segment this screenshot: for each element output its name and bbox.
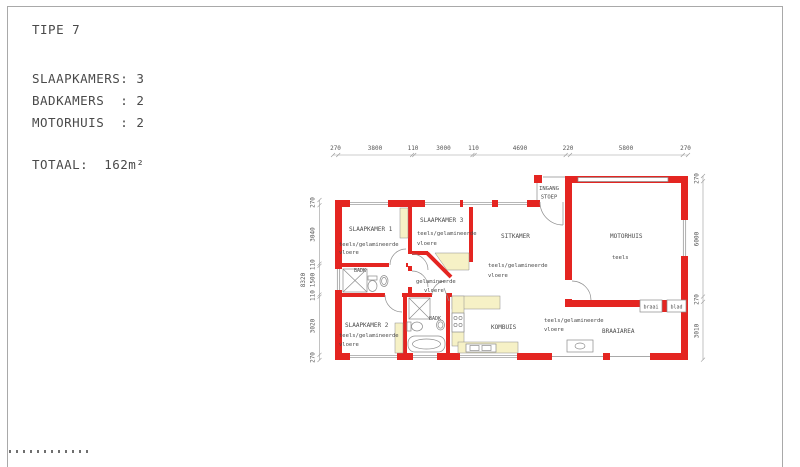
window-bath1 — [335, 269, 342, 290]
dim-left-6: 270 — [310, 352, 317, 363]
toilet-1 — [368, 281, 377, 292]
window-kombuis — [460, 353, 517, 360]
doorway-garage — [565, 280, 572, 299]
window-bath2 — [413, 353, 437, 360]
window-sitkamer-b — [498, 200, 527, 207]
garage-door-opening — [578, 178, 668, 182]
label-slaapkamer1-floor1: teels/gelamineerde — [339, 242, 399, 248]
dim-right-3: 3010 — [694, 323, 701, 338]
wall-pier-braai — [662, 300, 667, 312]
doorway-sk3 — [408, 254, 412, 266]
floor-plan-drawing: 270 3800 110 3000 110 4690 220 5800 270 … — [0, 0, 800, 454]
label-slaapkamer2-floor2: vloere — [339, 342, 359, 348]
label-sitkamer-floor1: teels/gelamineerde — [488, 263, 548, 269]
dim-right-2: 270 — [694, 294, 701, 305]
dim-top-8: 270 — [680, 145, 691, 152]
sk3-door-arc — [412, 254, 428, 270]
dimension-right: 270 6000 270 3010 — [694, 173, 706, 362]
label-slaapkamer1: SLAAPKAMER 1 — [349, 226, 393, 233]
label-motorhuis: MOTORHUIS — [610, 233, 643, 240]
label-badkamer1: BADK — [354, 268, 366, 274]
braai-sink-box — [567, 340, 593, 352]
label-gang-floor1: gelamineerde — [416, 279, 456, 285]
dim-left-5: 3020 — [310, 318, 317, 333]
label-motorhuis-floor: teels — [612, 255, 629, 261]
label-slaapkamer3: SLAAPKAMER 3 — [420, 217, 464, 224]
dim-top-5: 4690 — [513, 145, 528, 152]
doorway-sk1 — [389, 263, 406, 267]
label-slaapkamer2: SLAAPKAMER 2 — [345, 322, 389, 329]
doorway-sk2 — [385, 293, 402, 297]
wall-bath2-left — [403, 297, 407, 353]
wall-bath2-right — [446, 297, 450, 353]
toilet-2 — [412, 322, 423, 331]
label-slaapkamer3-floor2: vloere — [417, 241, 437, 247]
dim-right-1: 6000 — [694, 231, 701, 246]
entrance-porch — [537, 177, 565, 225]
stove — [452, 313, 464, 332]
label-badkamer2: BADK — [429, 316, 441, 322]
label-braaiarea-floor2: vloere — [544, 327, 564, 333]
sk1-door-arc — [390, 249, 406, 265]
dim-top-2: 110 — [408, 145, 419, 152]
label-ingang: INGANG — [539, 186, 559, 192]
porch-pillar — [534, 175, 542, 183]
window-sk1 — [350, 200, 388, 207]
dim-left-4: 110 — [310, 290, 317, 301]
garage-door-arc — [572, 281, 591, 300]
wall-exterior-right — [681, 176, 688, 360]
toilet-2-tank — [407, 322, 411, 331]
label-slaapkamer2-floor1: teels/gelamineerde — [339, 333, 399, 339]
dim-top-7: 5800 — [619, 145, 634, 152]
window-sk2 — [350, 353, 397, 360]
doorway-bath1 — [408, 271, 412, 287]
bathroom2-fixtures — [407, 298, 445, 352]
dim-right-0: 270 — [694, 173, 701, 184]
dim-top-0: 270 — [330, 145, 341, 152]
dimension-top: 270 3800 110 3000 110 4690 220 5800 270 — [330, 145, 691, 157]
dim-top-1: 3800 — [368, 145, 383, 152]
dim-left-1: 3040 — [310, 227, 317, 242]
dim-top-3: 3000 — [436, 145, 451, 152]
label-braaiarea-floor1: teels/gelamineerde — [544, 318, 604, 324]
window-sk3-a — [425, 200, 460, 207]
braai-label: braai — [643, 305, 658, 311]
label-stoep: STOEP — [541, 195, 558, 201]
front-door-arc — [540, 202, 563, 225]
page: { "info": { "title": "TIPE 7", "bedrooms… — [0, 0, 800, 454]
dim-left-overall: 8320 — [300, 272, 307, 287]
braai-fittings: braai blad — [567, 300, 686, 352]
cupboards-counters — [395, 208, 518, 353]
label-sitkamer: SITKAMER — [501, 233, 530, 240]
toilet-1-tank — [368, 276, 377, 280]
dim-top-4: 110 — [468, 145, 479, 152]
dim-left-0: 270 — [310, 197, 317, 208]
label-slaapkamer3-floor1: teels/gelamineerde — [417, 231, 477, 237]
clipped-text-fragment — [9, 450, 93, 453]
dimension-left: 270 3040 110 1500 110 3020 270 8320 — [300, 197, 322, 363]
label-slaapkamer1-floor2: vloere — [339, 250, 359, 256]
window-garage — [681, 220, 688, 256]
label-sitkamer-floor2: vloere — [488, 273, 508, 279]
window-sitkamer-a — [463, 200, 492, 207]
label-braaiarea: BRAAIAREA — [602, 328, 635, 335]
dim-left-2: 110 — [310, 259, 317, 270]
wall-garage-bottom — [565, 300, 640, 307]
wardrobe-sk1 — [400, 208, 408, 238]
label-gang-floor2: vloere — [424, 288, 444, 294]
blad-label: blad — [670, 305, 682, 311]
dim-top-6: 220 — [563, 145, 574, 152]
sk2-door-arc — [385, 295, 402, 312]
label-kombuis: KOMBUIS — [491, 324, 517, 331]
bathtub — [408, 336, 445, 352]
dim-left-3: 1500 — [310, 272, 317, 287]
